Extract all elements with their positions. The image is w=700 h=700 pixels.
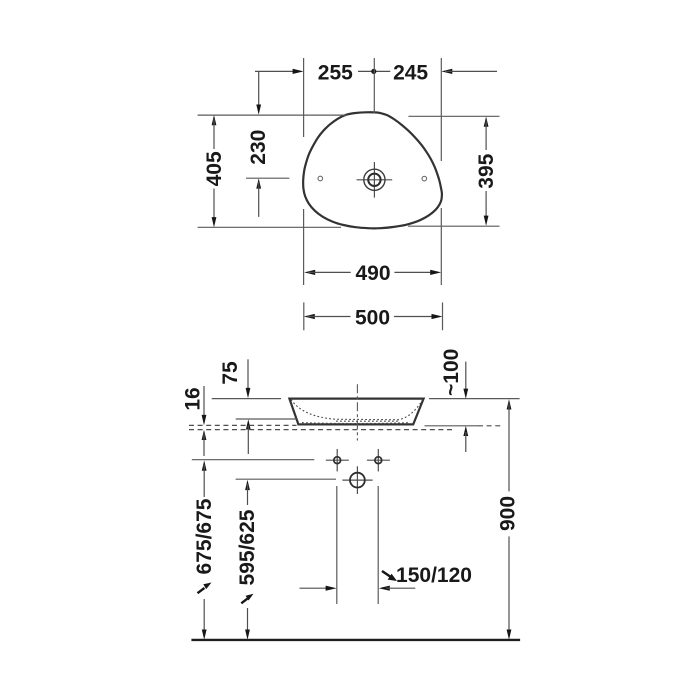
svg-text:490: 490 [355,262,390,285]
svg-text:900: 900 [497,496,520,531]
svg-text:16: 16 [181,387,204,410]
svg-text:150/120: 150/120 [396,564,472,587]
svg-text:395: 395 [475,153,498,188]
svg-text:75: 75 [219,361,242,385]
svg-text:675/675: 675/675 [193,498,216,574]
svg-text:230: 230 [247,130,270,165]
svg-text:255: 255 [318,61,353,84]
svg-text:245: 245 [393,61,428,84]
svg-text:~100: ~100 [440,349,463,396]
svg-text:595/625: 595/625 [236,509,259,585]
svg-text:500: 500 [355,306,390,329]
svg-text:405: 405 [203,151,226,186]
